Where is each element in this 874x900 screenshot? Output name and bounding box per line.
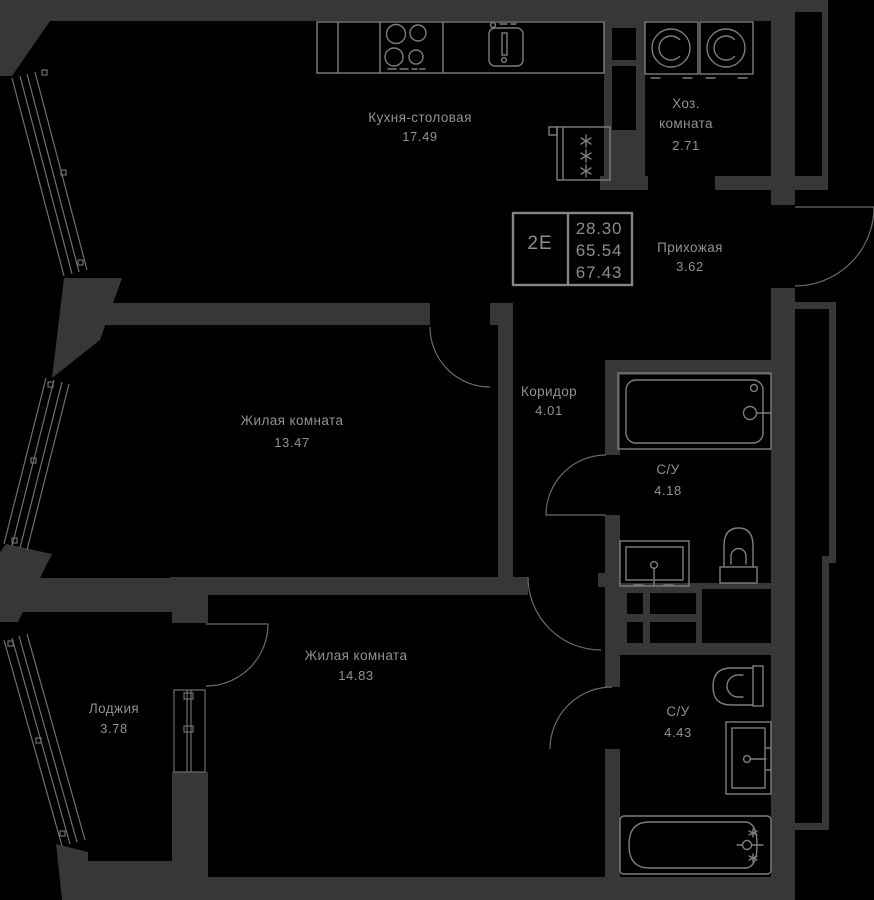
svg-text:Жилая комната: Жилая комната: [241, 413, 344, 428]
facade-window-living1: [4, 378, 69, 550]
washing-machine-icon: [645, 22, 698, 78]
toilet-icon: [713, 666, 763, 706]
wash-basin-icon: [620, 541, 689, 586]
svg-text:Лоджия: Лоджия: [89, 701, 139, 716]
room-label-utility: Хоз. комната 2.71: [659, 96, 713, 153]
bathtub-icon: [620, 816, 771, 874]
room-label-bathroom-1: С/У 4.18: [654, 462, 682, 498]
snowflake-icon: [581, 135, 591, 177]
bathroom2-door: [550, 687, 612, 749]
bathroom1-door: [546, 455, 606, 515]
svg-text:4.18: 4.18: [654, 483, 682, 498]
svg-text:Жилая комната: Жилая комната: [305, 648, 408, 663]
room-label-living-2: Жилая комната 14.83: [305, 648, 408, 683]
living2-door: [528, 577, 601, 650]
facade-window-kitchen: [12, 70, 87, 276]
room-label-loggia: Лоджия 3.78: [89, 701, 139, 736]
floor-plan-canvas: 2Е 28.30 65.54 67.43 Кухня-столовая 17.4…: [0, 0, 874, 900]
svg-text:4.43: 4.43: [664, 725, 692, 740]
washing-machine-icon: [700, 22, 753, 78]
unit-info-box: 2Е 28.30 65.54 67.43: [513, 213, 632, 285]
svg-text:2.71: 2.71: [672, 138, 700, 153]
room-label-kitchen: Кухня-столовая 17.49: [368, 110, 472, 144]
svg-text:13.47: 13.47: [274, 435, 310, 450]
loggia-door: [206, 624, 268, 686]
svg-text:14.83: 14.83: [338, 668, 374, 683]
wash-basin-icon: [726, 722, 771, 794]
facade-window-loggia: [4, 634, 85, 846]
stove-icon: [385, 25, 426, 70]
unit-area-total: 67.43: [576, 263, 623, 282]
svg-text:Прихожая: Прихожая: [657, 240, 723, 255]
unit-area-living: 28.30: [576, 219, 623, 238]
floor-plan: 2Е 28.30 65.54 67.43 Кухня-столовая 17.4…: [0, 0, 874, 900]
kitchen-sink-icon: [489, 23, 523, 66]
living1-door: [430, 327, 490, 387]
svg-text:Кухня-столовая: Кухня-столовая: [368, 110, 472, 125]
kitchen-counter: [317, 22, 604, 73]
room-label-corridor: Коридор 4.01: [521, 384, 577, 418]
entrance-door: [795, 207, 874, 286]
svg-text:3.62: 3.62: [676, 259, 704, 274]
svg-text:С/У: С/У: [656, 462, 679, 477]
svg-text:4.01: 4.01: [535, 403, 563, 418]
svg-text:Коридор: Коридор: [521, 384, 577, 399]
room-label-bathroom-2: С/У 4.43: [664, 704, 692, 740]
svg-text:3.78: 3.78: [100, 721, 128, 736]
loggia-room-window: [174, 690, 205, 772]
toilet-icon: [720, 528, 757, 583]
svg-text:комната: комната: [659, 116, 713, 131]
bathtub-icon: [618, 373, 771, 449]
svg-text:Хоз.: Хоз.: [672, 96, 700, 111]
svg-text:17.49: 17.49: [402, 129, 438, 144]
unit-code: 2Е: [527, 233, 552, 254]
svg-text:С/У: С/У: [666, 704, 689, 719]
room-label-hallway: Прихожая 3.62: [657, 240, 723, 274]
unit-area-main: 65.54: [576, 241, 623, 260]
fridge-icon: [549, 127, 610, 180]
room-label-living-1: Жилая комната 13.47: [241, 413, 344, 450]
